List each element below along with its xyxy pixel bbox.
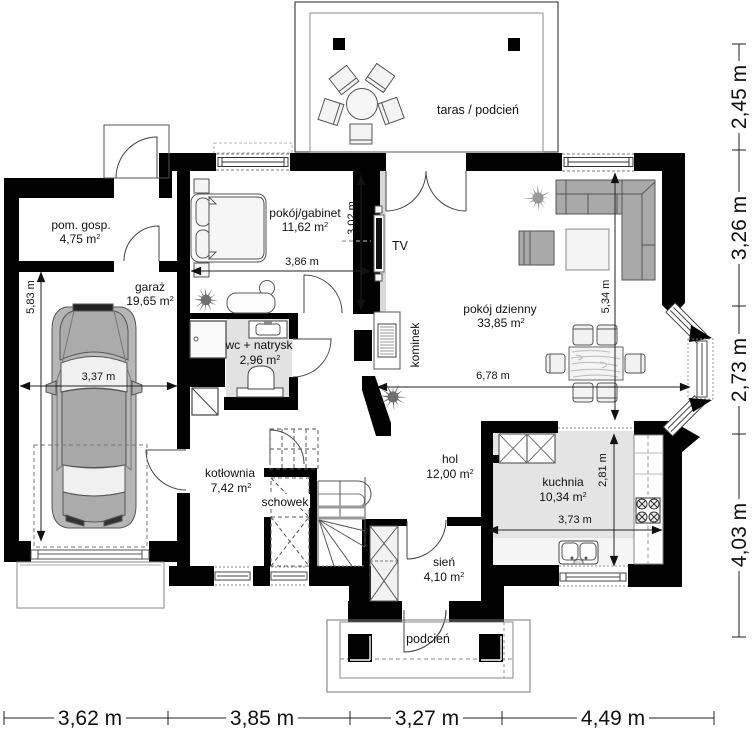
svg-text:4,75 m2: 4,75 m2 bbox=[60, 232, 101, 246]
svg-text:4,03 m: 4,03 m bbox=[728, 503, 751, 567]
svg-text:4,10 m2: 4,10 m2 bbox=[424, 570, 465, 584]
svg-text:taras / podcień: taras / podcień bbox=[437, 103, 519, 117]
svg-text:6,78 m: 6,78 m bbox=[476, 370, 510, 382]
svg-text:kominek: kominek bbox=[408, 322, 422, 368]
svg-text:wc + natrysk: wc + natrysk bbox=[224, 338, 293, 352]
svg-text:hol: hol bbox=[442, 452, 458, 466]
svg-text:7,42 m2: 7,42 m2 bbox=[211, 481, 252, 495]
svg-text:schowek: schowek bbox=[262, 495, 310, 509]
svg-text:2,45 m: 2,45 m bbox=[728, 65, 751, 129]
svg-text:3,37 m: 3,37 m bbox=[82, 371, 116, 383]
svg-text:5,83 m: 5,83 m bbox=[25, 280, 37, 314]
svg-text:pokój dzienny: pokój dzienny bbox=[463, 302, 536, 316]
svg-text:19,65 m2: 19,65 m2 bbox=[126, 294, 173, 308]
svg-text:11,62 m2: 11,62 m2 bbox=[282, 220, 329, 234]
svg-text:kotłownia: kotłownia bbox=[205, 466, 255, 480]
svg-text:garaż: garaż bbox=[135, 280, 165, 294]
svg-text:2,81 m: 2,81 m bbox=[597, 453, 609, 487]
svg-text:TV: TV bbox=[392, 239, 409, 253]
svg-text:sień: sień bbox=[433, 555, 455, 569]
svg-text:podcień: podcień bbox=[406, 632, 450, 646]
svg-text:4,49 m: 4,49 m bbox=[581, 707, 645, 730]
svg-text:3,02 m: 3,02 m bbox=[346, 201, 358, 235]
svg-text:12,00 m2: 12,00 m2 bbox=[426, 467, 473, 481]
svg-text:5,34 m: 5,34 m bbox=[600, 280, 612, 314]
svg-text:3,27 m: 3,27 m bbox=[395, 707, 459, 730]
svg-text:pom. gosp.: pom. gosp. bbox=[51, 218, 110, 232]
svg-text:kuchnia: kuchnia bbox=[542, 475, 584, 489]
svg-text:pokój/gabinet: pokój/gabinet bbox=[269, 206, 341, 220]
svg-text:3,73 m: 3,73 m bbox=[558, 514, 592, 526]
svg-text:2,96 m2: 2,96 m2 bbox=[240, 353, 281, 367]
svg-text:10,34 m2: 10,34 m2 bbox=[539, 490, 586, 504]
svg-text:3,86 m: 3,86 m bbox=[285, 256, 319, 268]
svg-text:33,85 m2: 33,85 m2 bbox=[477, 316, 524, 330]
svg-text:2,73 m: 2,73 m bbox=[728, 338, 751, 402]
svg-text:3,62 m: 3,62 m bbox=[58, 707, 122, 730]
svg-text:3,85 m: 3,85 m bbox=[230, 707, 294, 730]
svg-text:3,26 m: 3,26 m bbox=[728, 196, 751, 260]
